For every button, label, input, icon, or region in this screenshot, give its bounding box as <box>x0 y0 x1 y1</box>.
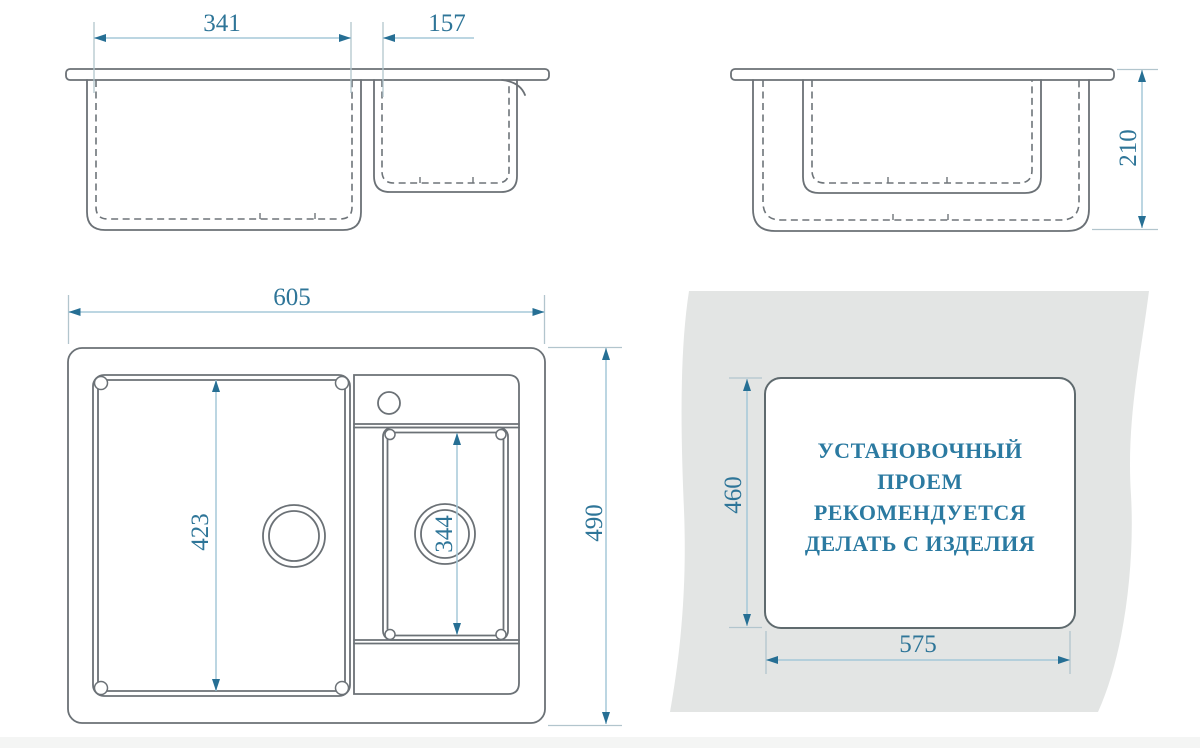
installation-note-line: ПРОЕМ <box>877 469 962 494</box>
front-section-view: 341 157 <box>66 10 549 230</box>
dim-label-main-bowl-length: 423 <box>187 513 214 551</box>
dimension-210: 210 <box>1092 70 1158 230</box>
small-bowl-outline-side <box>803 80 1041 193</box>
small-bowl-hidden-contour-front <box>382 80 509 183</box>
dim-label-cutout-depth: 460 <box>720 476 747 514</box>
dim-label-cutout-width: 575 <box>899 631 937 658</box>
dim-label-bowl-depth: 210 <box>1115 129 1142 167</box>
installation-cutout-view: УСТАНОВОЧНЫЙ ПРОЕМ РЕКОМЕНДУЕТСЯ ДЕЛАТЬ … <box>670 291 1149 712</box>
installation-note-line: РЕКОМЕНДУЕТСЯ <box>814 500 1026 525</box>
overflow-arc <box>502 80 525 95</box>
dim-label-small-bowl-width: 157 <box>428 10 466 37</box>
bowl-corner-marker <box>95 377 108 390</box>
small-bowl-hidden-contour-side <box>812 80 1032 183</box>
dim-label-overall-depth: 490 <box>581 504 608 542</box>
dimension-490: 490 <box>548 348 622 726</box>
dimension-157: 157 <box>383 10 474 97</box>
side-section-view: 210 <box>731 69 1158 231</box>
bowl-corner-marker <box>95 682 108 695</box>
dimension-605: 605 <box>69 284 545 344</box>
technical-drawing: 341 157 210 <box>0 0 1200 748</box>
bowl-corner-marker <box>385 430 395 440</box>
bowl-corner-marker <box>496 630 506 640</box>
sink-rim-side <box>731 69 1114 80</box>
drawing-svg: 341 157 210 <box>0 0 1200 748</box>
dim-label-small-bowl-length: 344 <box>431 515 458 553</box>
bowl-corner-marker <box>385 630 395 640</box>
installation-note-line: ДЕЛАТЬ С ИЗДЕЛИЯ <box>805 531 1035 556</box>
installation-note-line: УСТАНОВОЧНЫЙ <box>818 438 1023 463</box>
sink-rim-front <box>66 69 549 80</box>
dim-label-overall-width: 605 <box>273 284 311 311</box>
main-bowl-hidden-contour-front <box>96 80 352 219</box>
page-bottom-strip <box>0 737 1200 748</box>
bowl-corner-marker <box>336 682 349 695</box>
sink-outer-edge <box>68 348 545 723</box>
top-plan-view: 605 490 423 344 <box>68 284 622 726</box>
bowl-corner-marker <box>496 430 506 440</box>
small-bowl-outline-front <box>374 80 517 192</box>
main-bowl-outline-front <box>87 80 361 230</box>
dim-label-main-bowl-width: 341 <box>203 10 241 37</box>
bowl-corner-marker <box>336 377 349 390</box>
